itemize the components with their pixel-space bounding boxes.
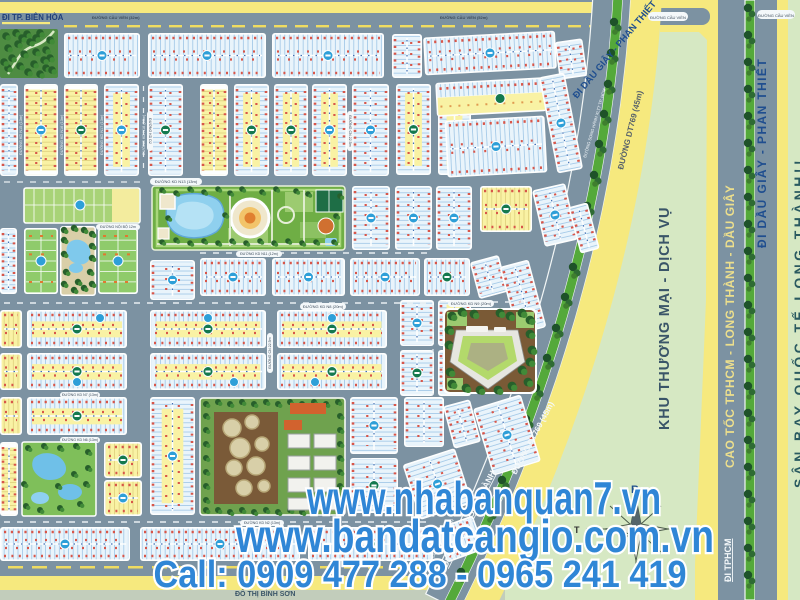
svg-text:ĐƯỜNG KD N17 (13m): ĐƯỜNG KD N17 (13m) bbox=[99, 114, 104, 155]
svg-text:ĐƯỜNG KD D2: ĐƯỜNG KD D2 bbox=[148, 118, 153, 144]
svg-text:CAO TỐC TPHCM - LONG THÀNH - D: CAO TỐC TPHCM - LONG THÀNH - DẦU GIÂY bbox=[722, 184, 737, 468]
svg-text:ĐI DẦU GIÂY - PHAN THIẾT: ĐI DẦU GIÂY - PHAN THIẾT bbox=[754, 58, 769, 248]
svg-text:ĐƯỜNG KD N16 (13m): ĐƯỜNG KD N16 (13m) bbox=[59, 114, 64, 155]
svg-text:ĐƯỜNG CẦU VIỀN: ĐƯỜNG CẦU VIỀN bbox=[758, 13, 794, 18]
svg-text:ĐƯỜNG CẦU VIỀN (52m): ĐƯỜNG CẦU VIỀN (52m) bbox=[440, 15, 488, 20]
svg-text:ĐƯỜNG KD N11 (12m): ĐƯỜNG KD N11 (12m) bbox=[240, 251, 278, 256]
svg-text:KHU THƯƠNG MẠI - DỊCH VỤ: KHU THƯƠNG MẠI - DỊCH VỤ bbox=[657, 207, 673, 430]
svg-text:ĐƯỜNG KD N9 (20m): ĐƯỜNG KD N9 (20m) bbox=[451, 301, 492, 306]
svg-text:ĐI TP. BIÊN HÒA: ĐI TP. BIÊN HÒA bbox=[2, 13, 64, 22]
svg-text:ĐƯỜNG KD N7 (13m): ĐƯỜNG KD N7 (13m) bbox=[62, 392, 98, 397]
svg-text:ĐI TPHCM: ĐI TPHCM bbox=[723, 539, 733, 583]
svg-text:ĐƯỜNG KD N15 (13m): ĐƯỜNG KD N15 (13m) bbox=[18, 114, 23, 155]
svg-text:Call: 0909 477 288 - 0965 241: Call: 0909 477 288 - 0965 241 419 bbox=[154, 554, 687, 596]
svg-text:ĐƯỜNG CẦU VIỀN (32m): ĐƯỜNG CẦU VIỀN (32m) bbox=[92, 15, 140, 20]
svg-text:ĐƯỜNG CN 22.5m: ĐƯỜNG CN 22.5m bbox=[348, 115, 353, 146]
svg-text:ĐƯỜNG KD N13 (13m): ĐƯỜNG KD N13 (13m) bbox=[155, 179, 198, 184]
svg-text:SÂN BAY QUỐC TẾ LONG THÀNH!!: SÂN BAY QUỐC TẾ LONG THÀNH!! bbox=[790, 157, 800, 488]
svg-text:ĐƯỜNG CẦU VIỀN: ĐƯỜNG CẦU VIỀN bbox=[650, 15, 686, 20]
svg-text:ĐƯỜNG CN 22.5m: ĐƯỜNG CN 22.5m bbox=[267, 337, 272, 368]
svg-text:ĐƯỜNG KD N6 (13m): ĐƯỜNG KD N6 (13m) bbox=[62, 437, 98, 442]
svg-text:ĐƯỜNG NỘI BỘ 12m: ĐƯỜNG NỘI BỘ 12m bbox=[100, 224, 136, 229]
svg-text:ĐƯỜNG KD N18 (13m): ĐƯỜNG KD N18 (13m) bbox=[141, 114, 146, 155]
svg-text:ĐƯỜNG KD N8 (20m): ĐƯỜNG KD N8 (20m) bbox=[303, 304, 344, 309]
